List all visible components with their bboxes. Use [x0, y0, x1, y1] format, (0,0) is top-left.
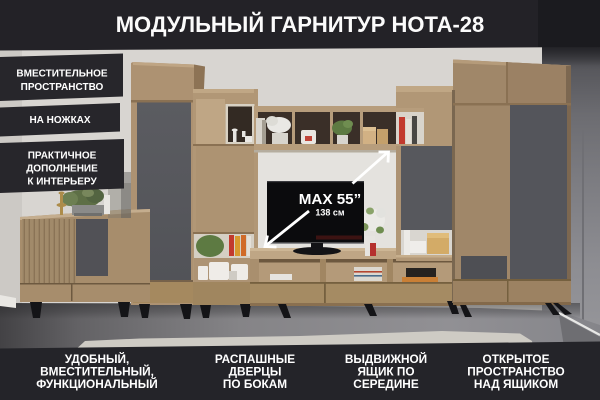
svg-text:МОДУЛЬНЫЙ ГАРНИТУР НОТА-28: МОДУЛЬНЫЙ ГАРНИТУР НОТА-28	[116, 12, 485, 37]
svg-text:НА НОЖКАХ: НА НОЖКАХ	[29, 115, 90, 126]
svg-text:ПО БОКАМ: ПО БОКАМ	[223, 377, 287, 391]
svg-text:СЕРЕДИНЕ: СЕРЕДИНЕ	[353, 377, 419, 391]
svg-text:ФУНКЦИОНАЛЬНЫЙ: ФУНКЦИОНАЛЬНЫЙ	[36, 377, 157, 391]
svg-text:ПРОСТРАНСТВО: ПРОСТРАНСТВО	[21, 82, 104, 93]
svg-text:ПРАКТИЧНОЕ: ПРАКТИЧНОЕ	[28, 151, 97, 162]
svg-text:MAX 55”: MAX 55”	[299, 191, 361, 208]
svg-text:К ИНТЕРЬЕРУ: К ИНТЕРЬЕРУ	[27, 177, 97, 188]
svg-text:138 см: 138 см	[315, 208, 345, 218]
svg-text:ДОПОЛНЕНИЕ: ДОПОЛНЕНИЕ	[26, 164, 98, 175]
svg-text:ВМЕСТИТЕЛЬНОЕ: ВМЕСТИТЕЛЬНОЕ	[16, 69, 107, 80]
svg-text:НАД ЯЩИКОМ: НАД ЯЩИКОМ	[474, 377, 559, 391]
